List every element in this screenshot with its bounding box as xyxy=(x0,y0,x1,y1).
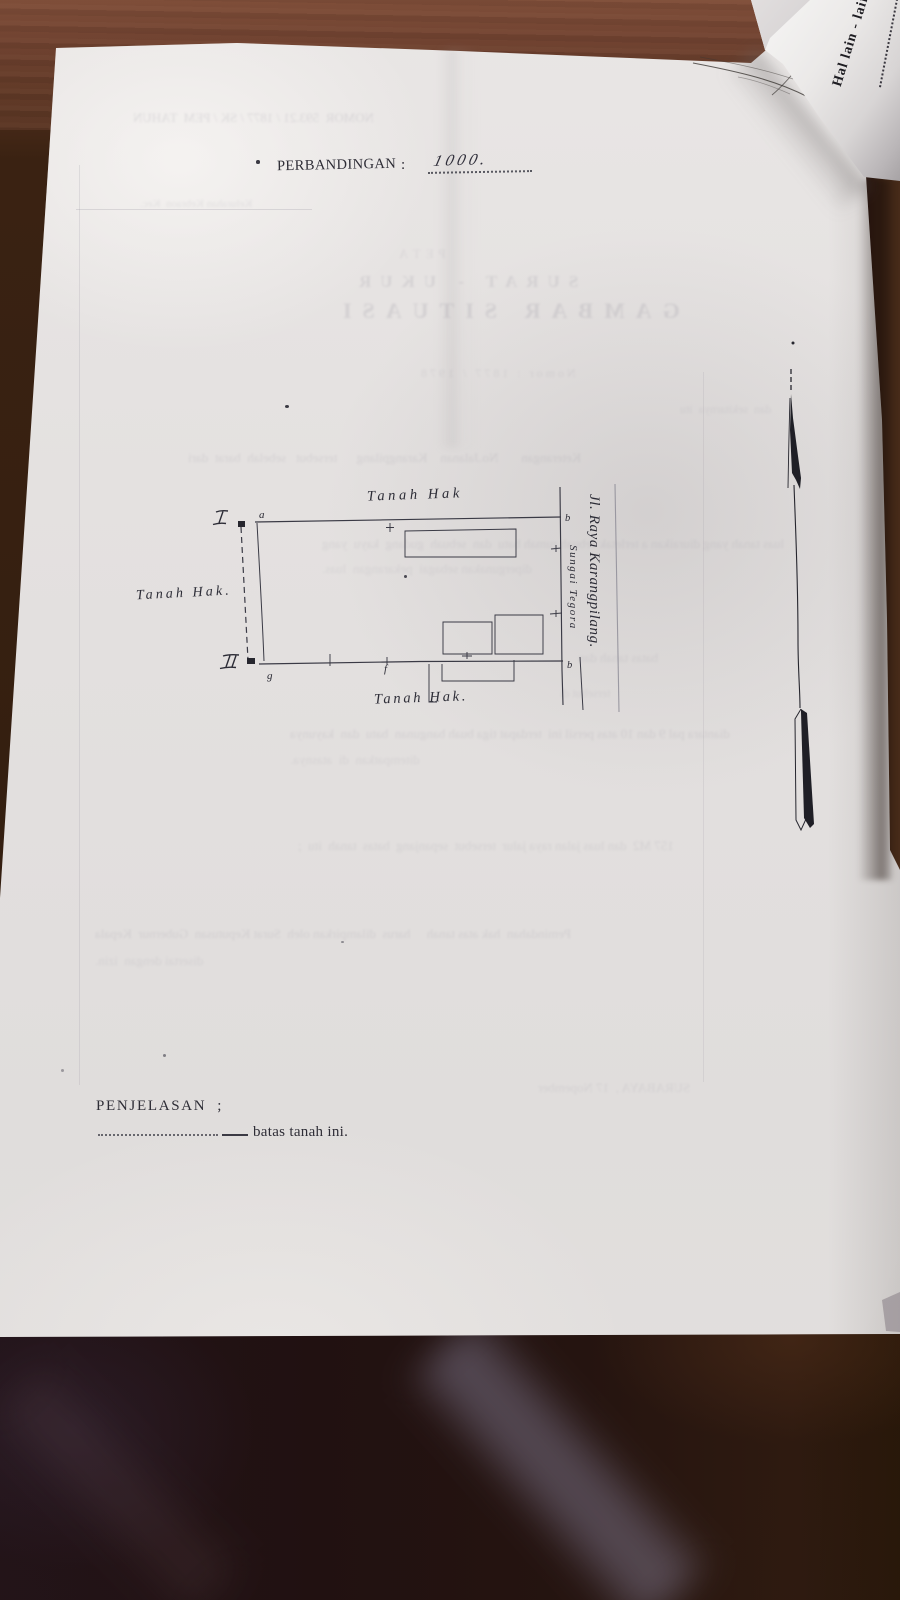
svg-text:Tanah Hak: Tanah Hak xyxy=(367,485,463,504)
svg-text:b: b xyxy=(567,660,572,671)
svg-text:g: g xyxy=(267,670,273,682)
svg-text:f: f xyxy=(384,663,389,675)
svg-text:Tanah Hak.: Tanah Hak. xyxy=(136,583,232,603)
svg-text:b: b xyxy=(565,513,570,524)
svg-text:Sungai Tegora: Sungai Tegora xyxy=(567,545,579,630)
svg-text:Jl. Raya Karangpilang.: Jl. Raya Karangpilang. xyxy=(586,494,602,648)
svg-text:a: a xyxy=(259,509,265,521)
svg-text:Tanah Hak.: Tanah Hak. xyxy=(374,688,469,707)
